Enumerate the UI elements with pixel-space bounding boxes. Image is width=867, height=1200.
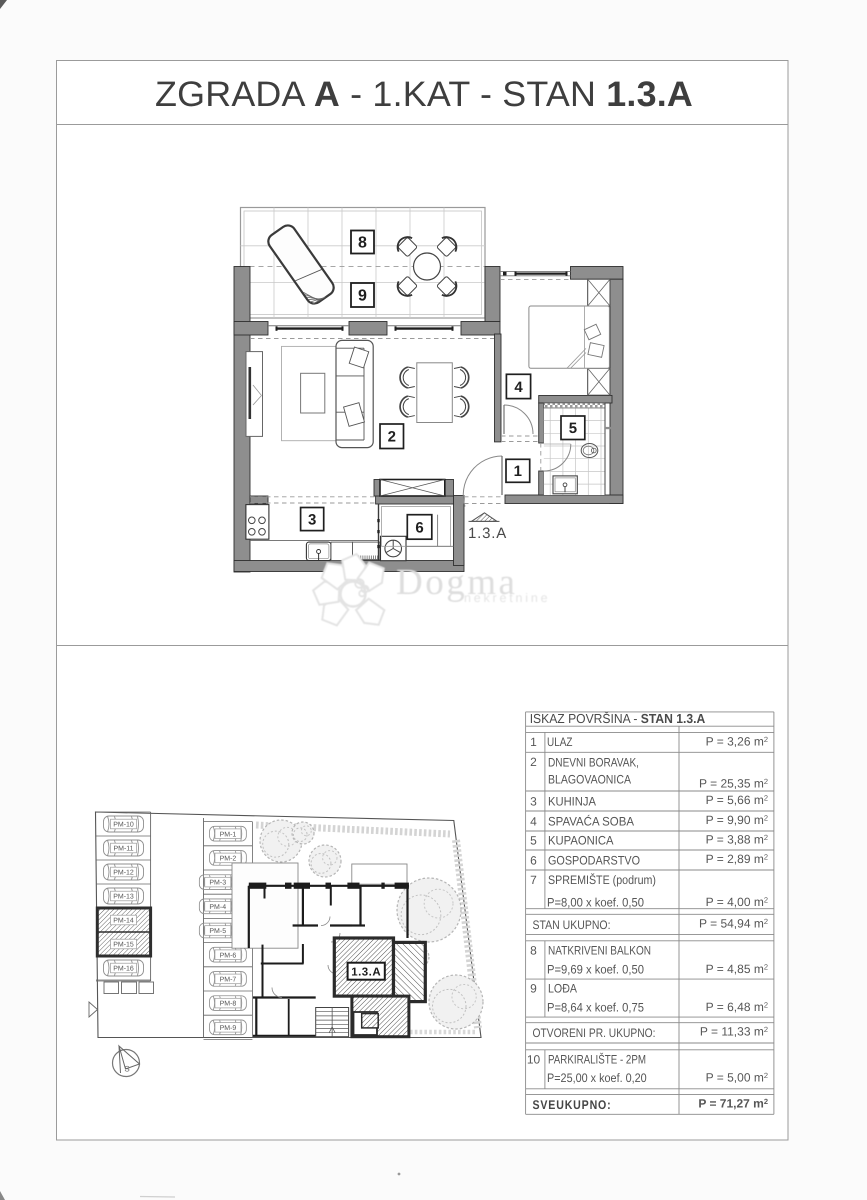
svg-text:10: 10 bbox=[527, 1053, 541, 1067]
svg-text:S: S bbox=[124, 1065, 129, 1074]
svg-text:PM-11: PM-11 bbox=[113, 846, 133, 853]
svg-text:4: 4 bbox=[530, 815, 537, 829]
svg-text:PM-1: PM-1 bbox=[220, 831, 237, 838]
svg-text:P = 11,33 m2: P = 11,33 m2 bbox=[700, 1025, 768, 1039]
svg-text:P = 54,94 m2: P = 54,94 m2 bbox=[699, 917, 768, 931]
svg-text:6: 6 bbox=[415, 519, 423, 536]
svg-text:P = 5,66 m2: P = 5,66 m2 bbox=[706, 793, 768, 807]
svg-text:2: 2 bbox=[530, 755, 537, 769]
svg-text:1.3.A: 1.3.A bbox=[468, 525, 507, 542]
svg-text:PM-3: PM-3 bbox=[209, 880, 226, 887]
svg-text:1: 1 bbox=[514, 463, 522, 480]
svg-text:nekretnine: nekretnine bbox=[464, 591, 550, 605]
svg-text:PM-12: PM-12 bbox=[113, 870, 134, 877]
svg-text:2: 2 bbox=[388, 429, 396, 446]
svg-text:GOSPODARSTVO: GOSPODARSTVO bbox=[548, 854, 640, 868]
svg-text:P = 25,35 m2: P = 25,35 m2 bbox=[699, 777, 768, 791]
svg-text:BLAGOVAONICA: BLAGOVAONICA bbox=[548, 773, 632, 787]
svg-text:8: 8 bbox=[530, 944, 537, 958]
svg-text:KUHINJA: KUHINJA bbox=[548, 795, 597, 809]
svg-text:SVEUKUPNO:: SVEUKUPNO: bbox=[533, 1098, 612, 1112]
svg-text:ISKAZ POVRŠINA - STAN 1.3.A: ISKAZ POVRŠINA - STAN 1.3.A bbox=[530, 711, 706, 726]
svg-text:SPAVAĆA SOBA: SPAVAĆA SOBA bbox=[548, 815, 635, 829]
svg-text:NATKRIVENI BALKON: NATKRIVENI BALKON bbox=[548, 944, 651, 958]
svg-text:PM-6: PM-6 bbox=[220, 952, 237, 959]
svg-text:5: 5 bbox=[530, 834, 537, 848]
svg-text:P=9,69 x koef. 0,50: P=9,69 x koef. 0,50 bbox=[547, 963, 644, 977]
svg-text:ULAZ: ULAZ bbox=[547, 735, 573, 749]
svg-text:PM-7: PM-7 bbox=[220, 977, 237, 984]
svg-text:P = 3,88 m2: P = 3,88 m2 bbox=[706, 833, 768, 847]
svg-text:P = 3,26 m2: P = 3,26 m2 bbox=[706, 735, 768, 749]
svg-text:PM-4: PM-4 bbox=[209, 904, 226, 911]
svg-text:P=8,64 x koef. 0,75: P=8,64 x koef. 0,75 bbox=[547, 1001, 644, 1015]
svg-text:3: 3 bbox=[530, 795, 537, 809]
svg-text:P = 71,27 m2: P = 71,27 m2 bbox=[698, 1097, 768, 1111]
svg-text:P=8,00 x koef. 0,50: P=8,00 x koef. 0,50 bbox=[547, 896, 644, 910]
svg-text:ZGRADA A - 1.KAT - STAN 1.3.A: ZGRADA A - 1.KAT - STAN 1.3.A bbox=[155, 74, 693, 114]
svg-text:P = 4,85 m2: P = 4,85 m2 bbox=[706, 962, 768, 976]
svg-text:5: 5 bbox=[569, 420, 577, 437]
svg-text:STAN UKUPNO:: STAN UKUPNO: bbox=[533, 918, 611, 932]
svg-text:PM-14: PM-14 bbox=[113, 918, 134, 925]
svg-text:P = 9,90 m2: P = 9,90 m2 bbox=[706, 813, 768, 827]
svg-text:PM-8: PM-8 bbox=[220, 1001, 237, 1008]
svg-text:PM-5: PM-5 bbox=[209, 928, 226, 935]
svg-text:PARKIRALIŠTE - 2PM: PARKIRALIŠTE - 2PM bbox=[548, 1053, 646, 1067]
svg-text:P=25,00 x koef. 0,20: P=25,00 x koef. 0,20 bbox=[547, 1071, 647, 1085]
svg-text:PM-2: PM-2 bbox=[220, 856, 237, 863]
svg-text:OTVORENI PR. UKUPNO:: OTVORENI PR. UKUPNO: bbox=[533, 1026, 656, 1040]
svg-text:P = 4,00 m2: P = 4,00 m2 bbox=[706, 895, 768, 909]
svg-text:PM-15: PM-15 bbox=[113, 942, 134, 949]
svg-text:7: 7 bbox=[530, 873, 537, 887]
svg-text:1.3.A: 1.3.A bbox=[351, 966, 381, 978]
svg-text:4: 4 bbox=[514, 379, 523, 396]
svg-text:1: 1 bbox=[530, 735, 537, 749]
svg-text:PM-10: PM-10 bbox=[113, 822, 134, 829]
svg-text:9: 9 bbox=[530, 982, 537, 996]
svg-text:9: 9 bbox=[358, 288, 367, 305]
svg-text:6: 6 bbox=[530, 854, 537, 868]
svg-text:KUPAONICA: KUPAONICA bbox=[548, 834, 614, 848]
svg-text:P = 5,00 m2: P = 5,00 m2 bbox=[706, 1071, 768, 1085]
svg-text:LOĐA: LOĐA bbox=[548, 982, 578, 996]
svg-text:P = 6,48 m2: P = 6,48 m2 bbox=[706, 1000, 768, 1014]
svg-text:SPREMIŠTE (podrum): SPREMIŠTE (podrum) bbox=[548, 873, 656, 887]
svg-text:P = 2,89 m2: P = 2,89 m2 bbox=[706, 852, 768, 866]
svg-text:DNEVNI BORAVAK,: DNEVNI BORAVAK, bbox=[548, 756, 639, 770]
svg-text:3: 3 bbox=[308, 511, 316, 528]
svg-text:8: 8 bbox=[358, 235, 367, 252]
svg-text:PM-16: PM-16 bbox=[113, 966, 134, 973]
svg-text:PM-9: PM-9 bbox=[220, 1025, 237, 1032]
svg-text:PM-13: PM-13 bbox=[113, 894, 134, 901]
